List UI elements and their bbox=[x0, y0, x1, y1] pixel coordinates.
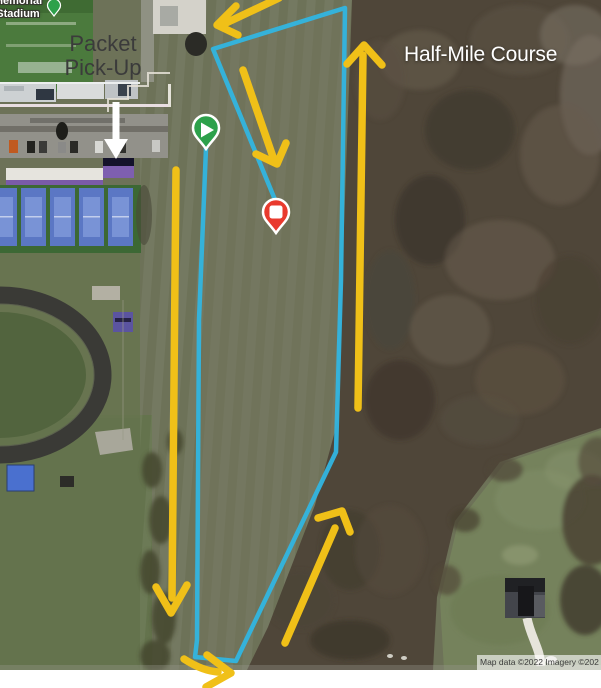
terrain-layer bbox=[0, 0, 601, 670]
car bbox=[9, 140, 18, 153]
packet-label-line1: Packet bbox=[60, 32, 146, 56]
small-dark-building bbox=[60, 476, 74, 487]
car bbox=[152, 140, 160, 152]
parking-lot bbox=[0, 114, 168, 158]
tennis-courts bbox=[0, 185, 152, 253]
map-place-label-stadium: Memorial Stadium bbox=[0, 0, 51, 21]
blue-building bbox=[7, 465, 34, 491]
car bbox=[27, 141, 35, 153]
walkway bbox=[0, 104, 170, 107]
packet-label-line2: Pick-Up bbox=[60, 56, 146, 80]
purple-building bbox=[103, 158, 134, 167]
course-map-image: Memorial Stadium Map data ©2022 Imagery … bbox=[0, 0, 601, 688]
car bbox=[118, 141, 126, 153]
stadium-label-line1: Memorial bbox=[0, 0, 51, 8]
car bbox=[39, 141, 47, 153]
packet-pickup-label: Packet Pick-Up bbox=[60, 32, 146, 80]
satellite-map: Memorial Stadium Map data ©2022 Imagery … bbox=[0, 0, 601, 670]
map-attribution: Map data ©2022 Imagery ©202 bbox=[477, 655, 601, 670]
car bbox=[58, 142, 66, 153]
half-mile-course-label: Half-Mile Course bbox=[404, 43, 557, 67]
utility-pad bbox=[92, 286, 120, 300]
car bbox=[70, 141, 78, 153]
purple-building bbox=[103, 166, 134, 178]
stadium-label-line2: Stadium bbox=[0, 8, 51, 21]
car bbox=[95, 141, 103, 153]
